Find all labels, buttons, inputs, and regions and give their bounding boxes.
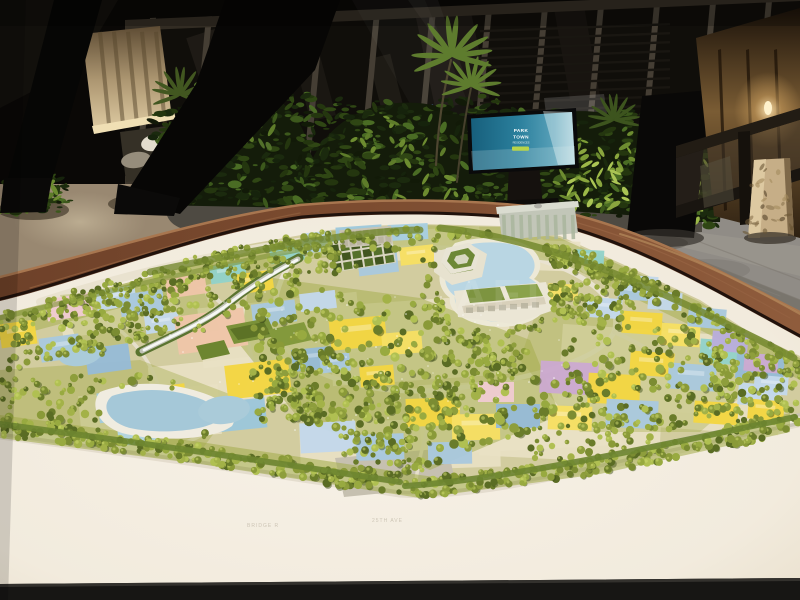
svg-text:BRIDGE R: BRIDGE R bbox=[247, 523, 279, 529]
svg-text:25TH AVE: 25TH AVE bbox=[372, 518, 403, 524]
svg-text:RESIDENCES: RESIDENCES bbox=[513, 141, 530, 145]
svg-text:PARK: PARK bbox=[514, 128, 529, 133]
svg-text:TOWN: TOWN bbox=[513, 135, 529, 140]
svg-text:AEI: AEI bbox=[456, 271, 544, 320]
